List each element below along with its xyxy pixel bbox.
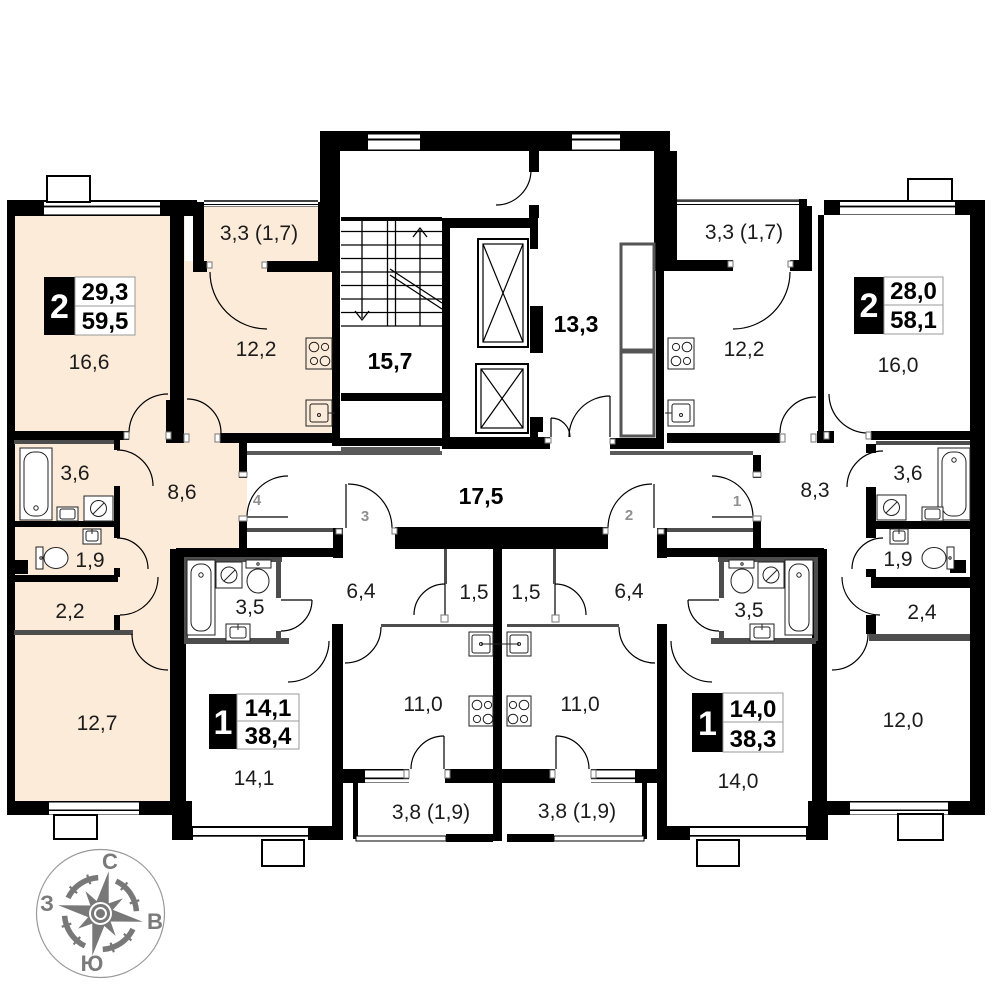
svg-text:С: С: [102, 849, 118, 874]
svg-text:1: 1: [733, 493, 741, 510]
svg-text:2: 2: [50, 288, 69, 326]
svg-text:28,0: 28,0: [890, 278, 937, 305]
svg-text:З: З: [40, 891, 54, 916]
svg-text:38,4: 38,4: [245, 723, 292, 750]
svg-text:14,0: 14,0: [730, 696, 777, 723]
svg-text:3: 3: [361, 508, 369, 525]
svg-text:8,3: 8,3: [800, 479, 829, 502]
svg-text:1: 1: [214, 704, 233, 742]
svg-text:13,3: 13,3: [554, 311, 599, 337]
svg-text:1,9: 1,9: [75, 549, 104, 572]
svg-text:12,0: 12,0: [883, 709, 924, 732]
svg-text:3,6: 3,6: [60, 462, 89, 485]
svg-text:1,9: 1,9: [883, 548, 912, 571]
svg-text:29,3: 29,3: [82, 279, 129, 306]
svg-text:В: В: [147, 909, 163, 934]
svg-text:3,5: 3,5: [734, 599, 763, 622]
svg-text:3,3 (1,7): 3,3 (1,7): [220, 222, 298, 245]
svg-text:3,3 (1,7): 3,3 (1,7): [705, 221, 783, 244]
svg-text:1,5: 1,5: [459, 581, 488, 604]
svg-text:6,4: 6,4: [346, 580, 376, 603]
svg-text:1,5: 1,5: [511, 581, 540, 604]
svg-text:3,8 (1,9): 3,8 (1,9): [392, 801, 470, 824]
svg-text:38,3: 38,3: [730, 726, 777, 753]
svg-text:16,0: 16,0: [878, 354, 919, 377]
svg-text:12,7: 12,7: [77, 712, 118, 735]
svg-text:3,5: 3,5: [235, 596, 264, 619]
svg-text:2: 2: [860, 287, 879, 325]
svg-text:3,8 (1,9): 3,8 (1,9): [538, 800, 616, 823]
svg-text:4: 4: [253, 492, 262, 509]
svg-text:59,5: 59,5: [82, 308, 129, 335]
svg-text:14,1: 14,1: [245, 695, 292, 722]
svg-text:16,6: 16,6: [69, 351, 110, 374]
svg-text:17,5: 17,5: [459, 483, 504, 509]
svg-text:15,7: 15,7: [368, 348, 413, 374]
svg-text:12,2: 12,2: [724, 338, 765, 361]
svg-text:2: 2: [625, 507, 633, 524]
svg-text:11,0: 11,0: [560, 693, 599, 716]
svg-text:6,4: 6,4: [614, 580, 644, 603]
svg-text:8,6: 8,6: [167, 481, 196, 504]
svg-text:3,6: 3,6: [893, 462, 922, 485]
svg-text:2,2: 2,2: [55, 600, 84, 623]
svg-text:2,4: 2,4: [907, 601, 937, 624]
svg-text:14,1: 14,1: [234, 767, 275, 790]
svg-text:12,2: 12,2: [236, 338, 277, 361]
svg-text:11,0: 11,0: [403, 693, 442, 716]
svg-text:Ю: Ю: [81, 951, 104, 976]
svg-text:1: 1: [698, 705, 717, 743]
svg-text:14,0: 14,0: [718, 770, 759, 793]
svg-text:58,1: 58,1: [890, 307, 937, 334]
